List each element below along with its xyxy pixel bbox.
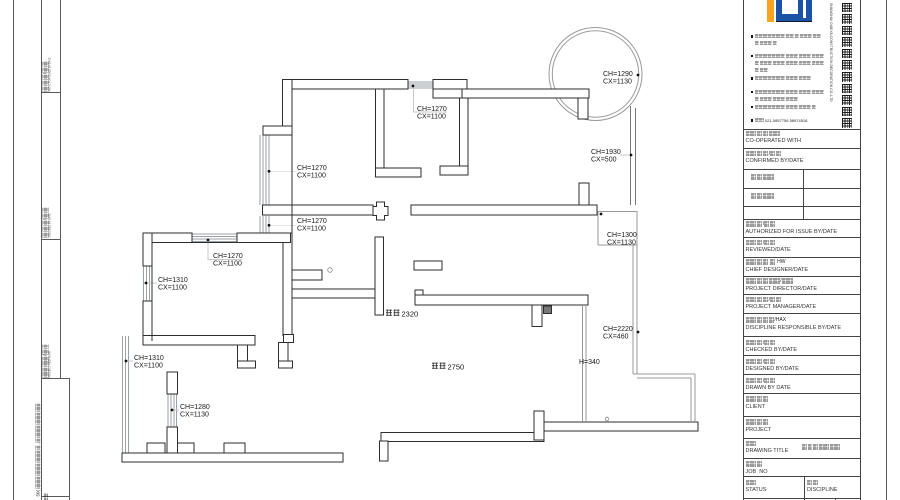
svg-text:CH=1310: CH=1310 [158,277,188,284]
svg-text:CX=1100: CX=1100 [297,173,326,180]
svg-text:CX=1130: CX=1130 [603,79,632,86]
svg-text:2750: 2750 [448,363,465,372]
svg-text:CH=1310: CH=1310 [134,355,164,362]
svg-text:CX=1100: CX=1100 [213,261,242,268]
svg-text:CX=500: CX=500 [591,157,617,164]
svg-text:CH=1290: CH=1290 [603,71,633,78]
svg-text:H=340: H=340 [579,359,600,366]
svg-text:CH=1280: CH=1280 [180,404,210,411]
svg-text:CH=1270: CH=1270 [297,165,327,172]
svg-text:CX=1130: CX=1130 [180,412,209,419]
svg-text:CH=1300: CH=1300 [607,232,637,239]
svg-text:CH=1270: CH=1270 [297,218,327,225]
svg-text:CH=1270: CH=1270 [213,253,243,260]
svg-text:CX=460: CX=460 [603,334,629,341]
svg-text:CX=1100: CX=1100 [134,363,163,370]
svg-text:CH=1270: CH=1270 [417,106,447,113]
svg-text:2320: 2320 [402,310,419,319]
svg-text:CX=1130: CX=1130 [607,240,636,247]
svg-text:CX=1100: CX=1100 [417,114,446,121]
svg-text:CX=1100: CX=1100 [297,226,326,233]
svg-text:CX=1100: CX=1100 [158,285,187,292]
svg-text:CH=2220: CH=2220 [603,326,633,333]
svg-text:CH=1930: CH=1930 [591,149,621,156]
